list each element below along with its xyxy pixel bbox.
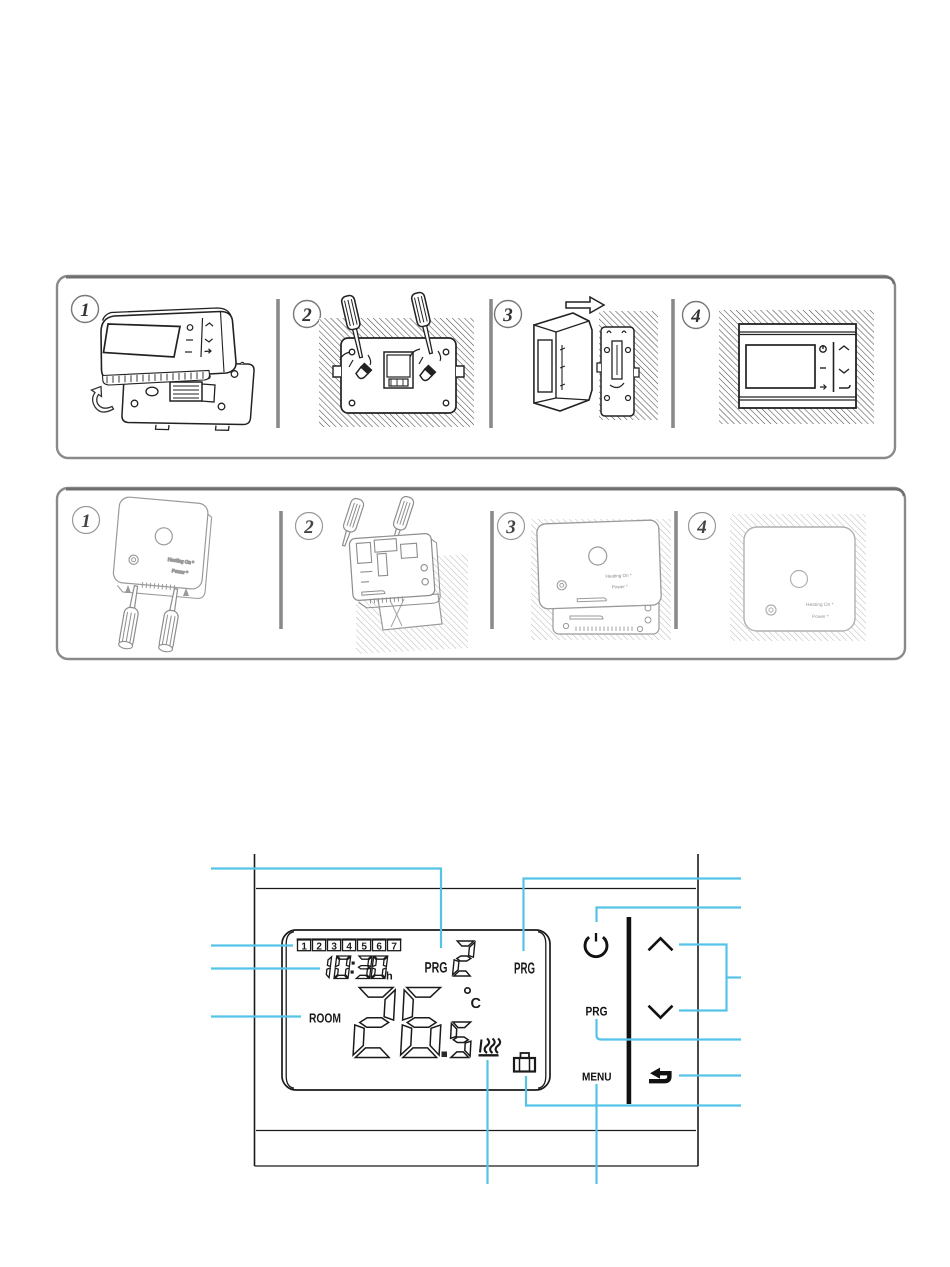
svg-text:MENU: MENU xyxy=(582,1072,612,1084)
svg-text:3: 3 xyxy=(502,305,513,326)
svg-text:2: 2 xyxy=(316,942,322,953)
svg-text:C: C xyxy=(471,996,482,1012)
svg-text:2: 2 xyxy=(303,517,314,538)
svg-text:1: 1 xyxy=(301,942,307,953)
svg-text:6: 6 xyxy=(376,942,382,953)
svg-text:4: 4 xyxy=(690,306,701,327)
svg-text:3: 3 xyxy=(505,517,516,538)
svg-text:Power *: Power * xyxy=(812,614,829,620)
svg-text:1: 1 xyxy=(81,511,91,532)
svg-text:4: 4 xyxy=(346,942,352,953)
svg-text:3: 3 xyxy=(331,942,337,953)
svg-text:PRG: PRG xyxy=(586,1005,608,1019)
svg-text:Heating On *: Heating On * xyxy=(605,573,632,579)
svg-text:Heating On *: Heating On * xyxy=(806,602,834,608)
svg-text:PRG: PRG xyxy=(514,961,535,978)
svg-text:5: 5 xyxy=(361,942,367,953)
svg-text:Power *: Power * xyxy=(612,584,628,590)
svg-text:PRG: PRG xyxy=(425,960,448,977)
svg-text:h: h xyxy=(386,971,393,983)
svg-text:ROOM: ROOM xyxy=(309,1011,341,1026)
svg-text:7: 7 xyxy=(391,942,397,953)
svg-text:4: 4 xyxy=(696,517,707,538)
svg-text:1: 1 xyxy=(80,300,90,321)
svg-text:2: 2 xyxy=(301,305,312,326)
